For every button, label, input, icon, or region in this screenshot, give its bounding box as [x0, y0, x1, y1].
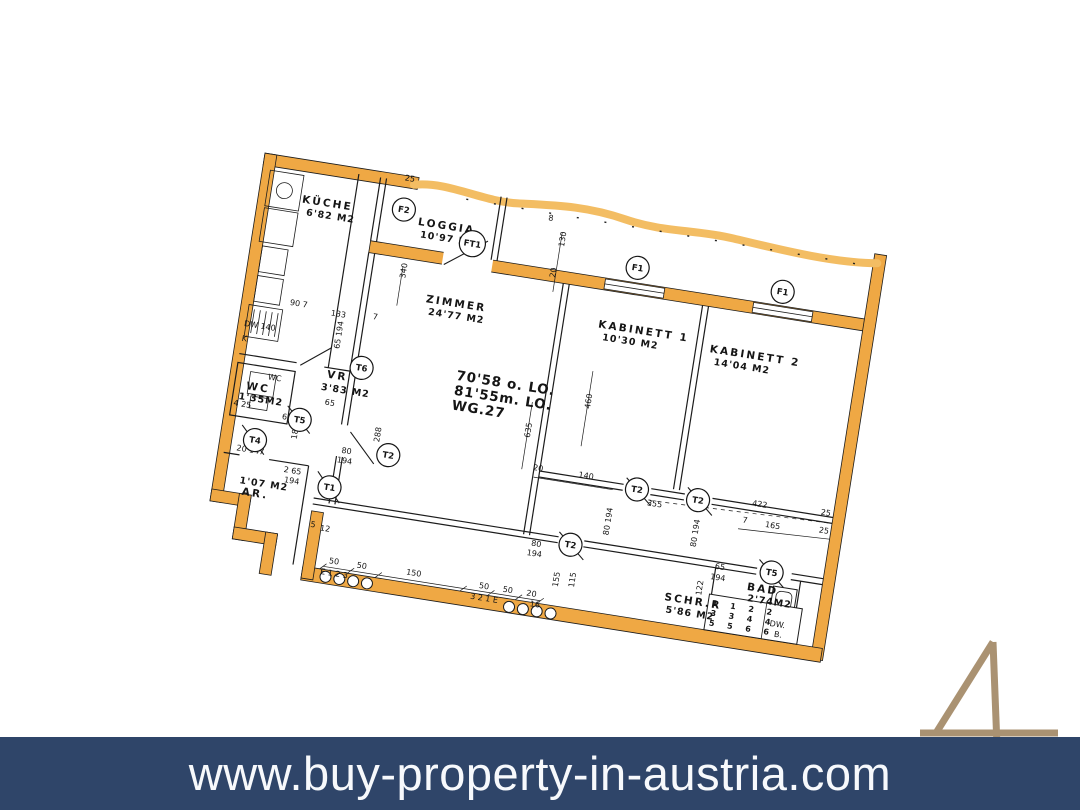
- website-banner: www.buy-property-in-austria.com: [0, 737, 1080, 810]
- page: 2581302034090 71337DW 140K65 194WC635460…: [0, 0, 1080, 810]
- marker-label-t2-8: T2: [382, 450, 395, 462]
- marker-label-t2-11: T2: [691, 495, 704, 507]
- dim-label-42: 50: [356, 561, 367, 571]
- dim-label-23: 194: [336, 455, 353, 466]
- dim-label-5: 90 7: [289, 298, 308, 310]
- marker-label-f2-0: F2: [397, 205, 410, 217]
- title-block: 70'58 o. LO. 81'55m. LO. WG.27: [451, 368, 557, 429]
- room-label-vr: VR: [326, 369, 348, 384]
- dim-label-14: 65: [324, 398, 335, 408]
- dim-label-29: 140: [578, 470, 595, 481]
- dim-label-4: 340: [398, 262, 409, 279]
- dim-label-6: 133: [330, 308, 347, 319]
- dim-label-32: 7: [742, 515, 748, 525]
- dim-label-45: 50: [502, 585, 513, 595]
- dim-label-11: WC: [267, 372, 282, 383]
- dim-label-3: 20: [548, 267, 558, 278]
- marker-label-f1-2: F1: [631, 263, 644, 275]
- dim-label-47: 16: [529, 599, 540, 609]
- balcony-edge-wavy-line: [413, 182, 879, 267]
- dim-label-44: 50: [478, 581, 489, 591]
- marker-label-t2-9: T2: [564, 540, 577, 552]
- dim-label-35: 25: [818, 525, 829, 535]
- dim-label-43: 150: [406, 567, 423, 578]
- marker-label-t5-12: T5: [765, 568, 778, 580]
- dim-label-38: 122: [694, 580, 705, 597]
- marker-label-t5-5: T5: [293, 415, 306, 427]
- dim-label-1: 8: [548, 213, 554, 223]
- dim-label-28: 20: [532, 463, 543, 473]
- dim-label-36: 65: [714, 562, 725, 572]
- dim-label-37: 194: [710, 572, 727, 583]
- bad-grid-label-b: B.: [773, 630, 782, 640]
- dim-label-17: 288: [372, 426, 383, 443]
- marker-label-t6-4: T6: [355, 363, 368, 375]
- dim-label-31: 422: [752, 499, 769, 510]
- marker-label-t2-10: T2: [630, 485, 643, 497]
- dim-label-41: 50: [328, 556, 339, 566]
- dim-label-10: 65 194: [332, 320, 345, 349]
- dim-label-25: 194: [526, 548, 543, 559]
- marker-label-t1-7: T1: [323, 482, 336, 494]
- kitchen-sink-icon: [275, 181, 293, 199]
- dim-label-2: 130: [557, 231, 568, 248]
- website-url: www.buy-property-in-austria.com: [189, 746, 891, 801]
- dim-label-7: 7: [372, 312, 378, 322]
- marker-label-t4-6: T4: [248, 435, 261, 447]
- wall-top: [263, 153, 419, 189]
- dim-label-49: 12: [319, 523, 330, 533]
- watermark-4-diagonal: [936, 642, 993, 733]
- dim-label-0: 25: [404, 173, 415, 183]
- dim-label-33: 165: [764, 520, 781, 531]
- dim-label-24: 80: [531, 539, 542, 549]
- dim-label-39: 155: [551, 571, 562, 588]
- floor-plan-drawing: 2581302034090 71337DW 140K65 194WC635460…: [0, 0, 1080, 810]
- marker-label-f1-3: F1: [776, 287, 789, 299]
- kitchen-appliance-1: [258, 246, 288, 276]
- dim-label-40: 115: [567, 572, 578, 589]
- dim-label-46: 20: [526, 589, 537, 599]
- dim-label-26: 80 194: [602, 507, 615, 536]
- dim-label-34: 25: [820, 508, 831, 518]
- kitchen-appliance-2: [254, 276, 284, 306]
- dim-label-30: 355: [646, 498, 663, 509]
- dim-label-13: 460: [583, 393, 594, 410]
- dim-label-27: 80 194: [689, 519, 702, 548]
- dim-label-22: 80: [341, 446, 352, 456]
- dim-label-12: 635: [523, 422, 534, 439]
- floor-plan-rotated-group: 2581302034090 71337DW 140K65 194WC635460…: [200, 151, 888, 662]
